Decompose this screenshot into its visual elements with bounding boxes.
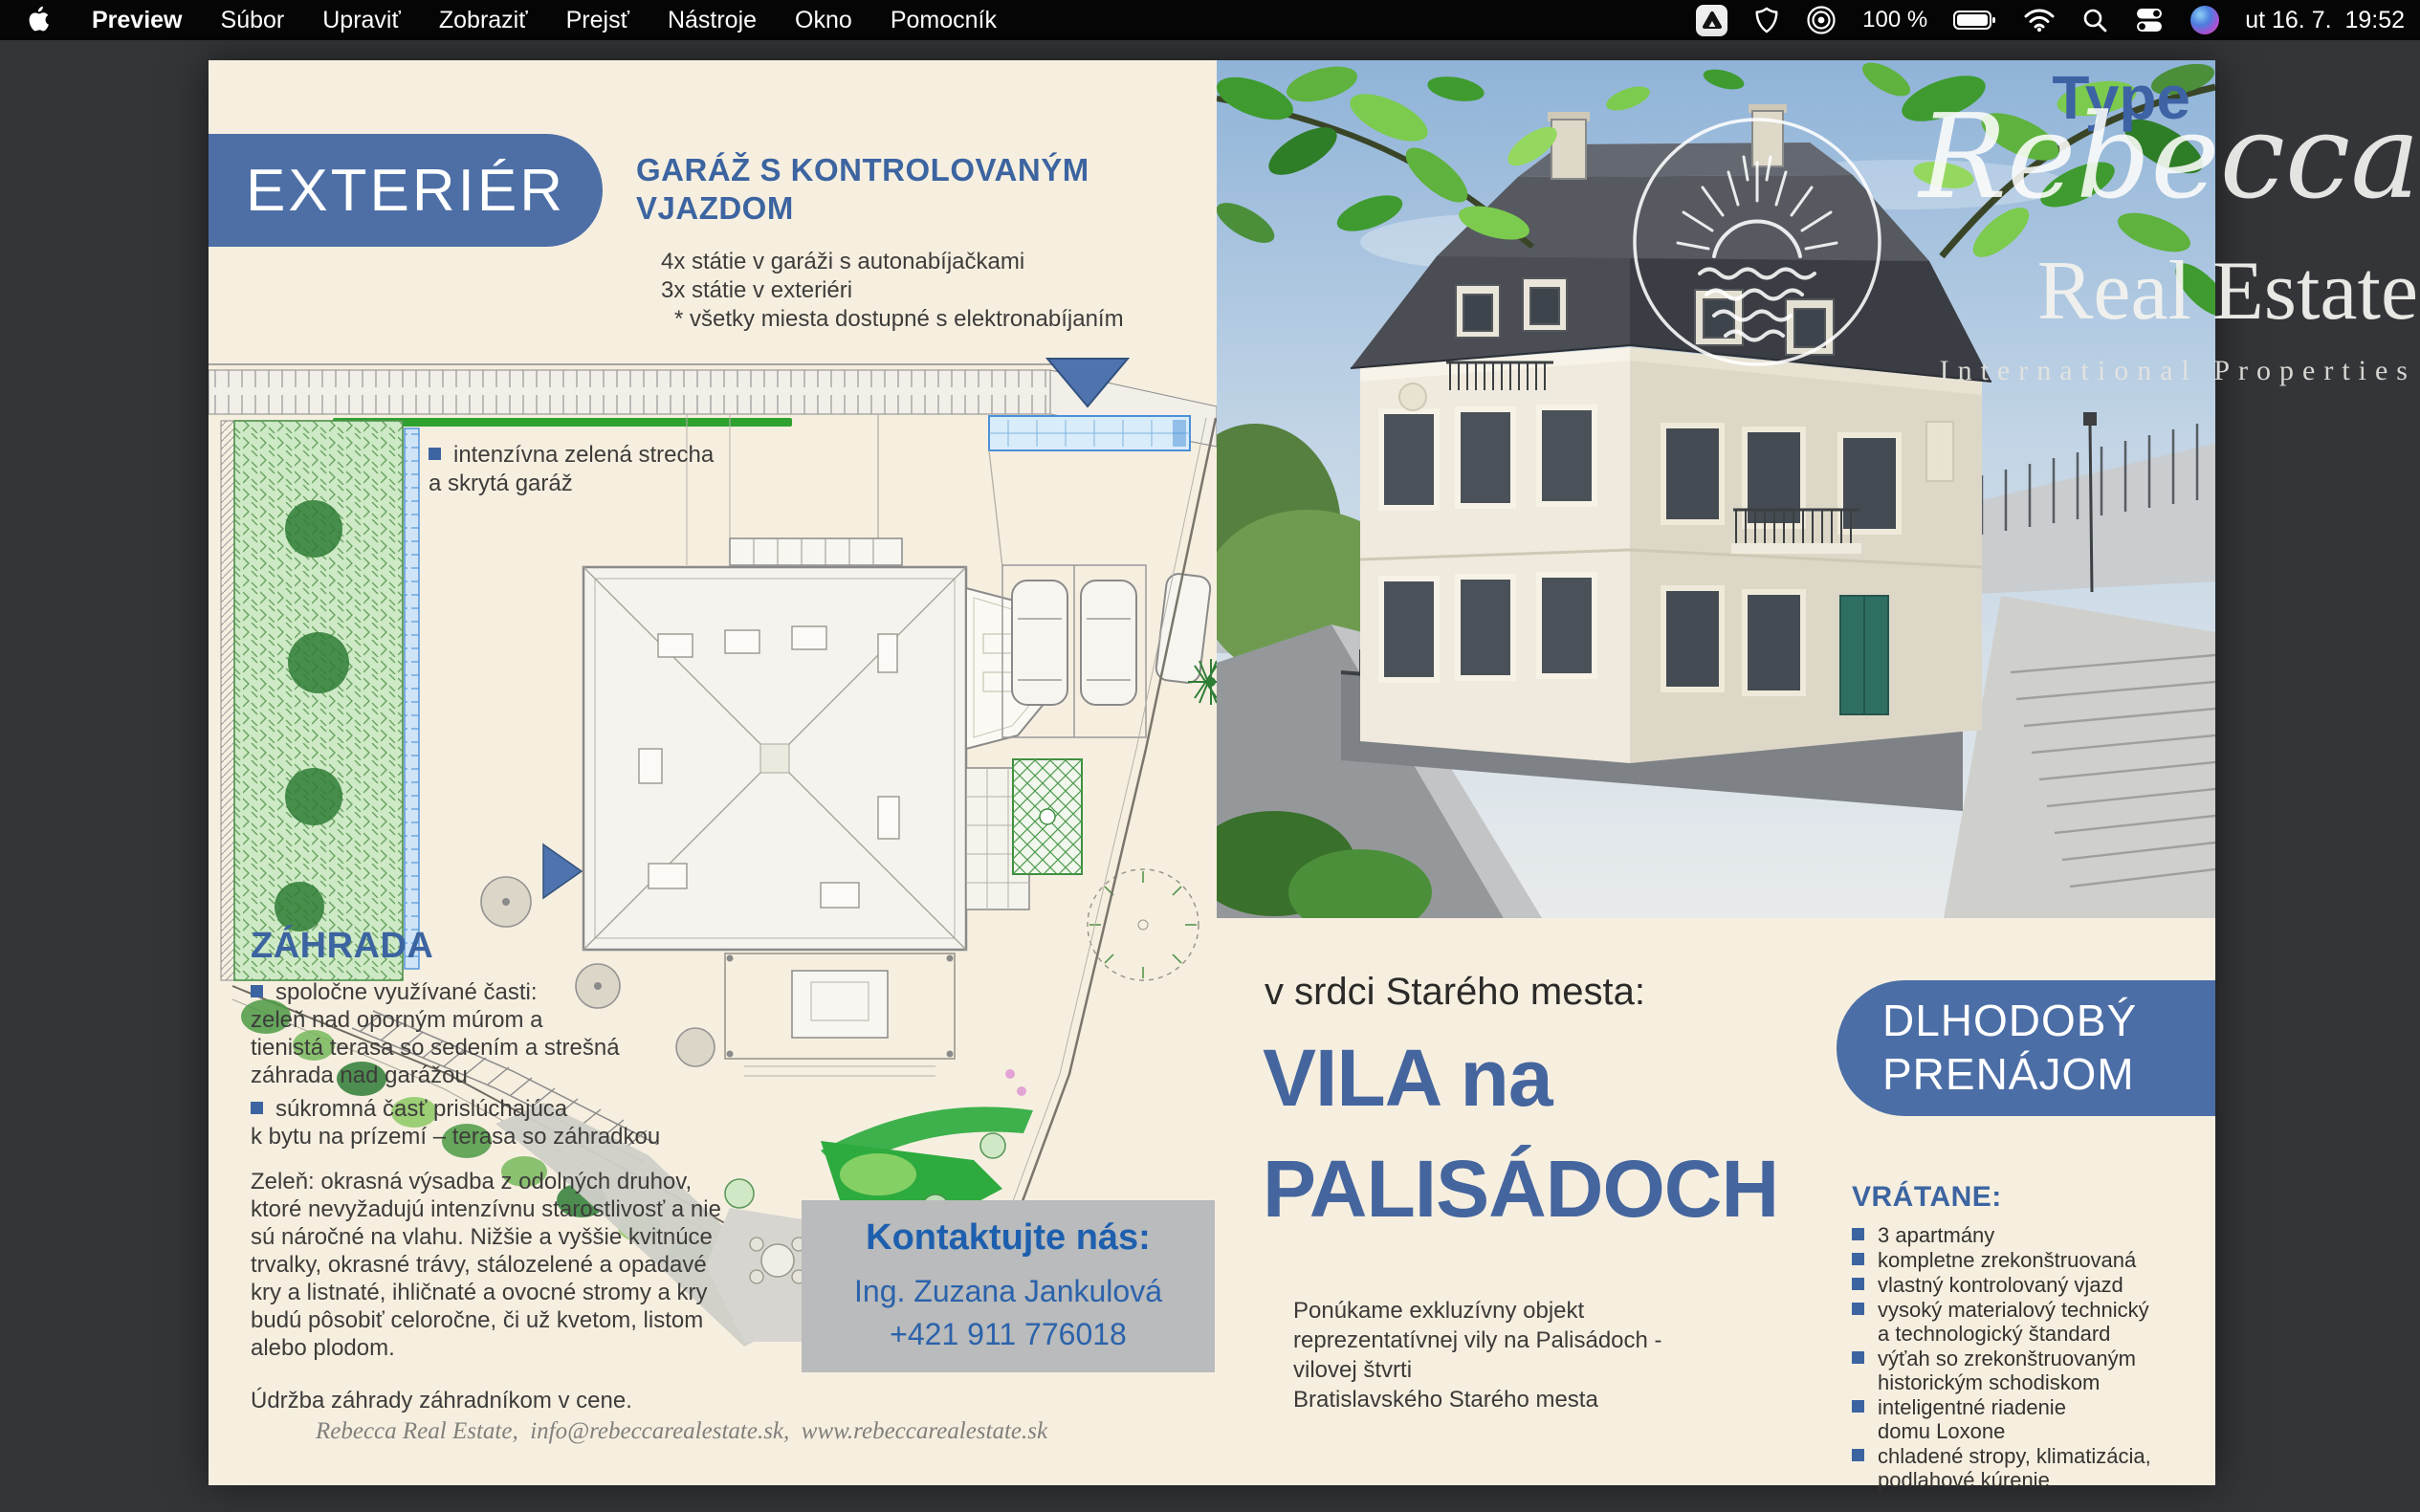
screen-mirroring-icon[interactable] — [1806, 5, 1837, 35]
garden-note: Údržba záhrady záhradníkom v cene. — [251, 1387, 758, 1414]
section-title: EXTERIÉR — [246, 157, 565, 225]
included-item: inteligentné riadenie domu Loxone — [1852, 1395, 2219, 1443]
wifi-icon[interactable] — [2023, 8, 2056, 33]
included-section: VRÁTANE: 3 apartmány kompletne zrekonštr… — [1852, 1181, 2219, 1493]
menu-item-zobrazit[interactable]: Zobraziť — [439, 7, 528, 34]
property-title-line2: PALISÁDOCH — [1263, 1133, 1778, 1244]
included-item: vysoký materialový technický a technolog… — [1852, 1298, 2219, 1346]
square-bullet-icon — [251, 1102, 263, 1114]
contact-box: Kontaktujte nás: Ing. Zuzana Jankulová +… — [802, 1200, 1215, 1372]
menubar-app-icon[interactable] — [1696, 5, 1727, 36]
included-item: výťah so zrekonštruovaným historickým sc… — [1852, 1347, 2219, 1394]
menu-item-prejst[interactable]: Prejsť — [566, 7, 629, 34]
included-item: kompletne zrekonštruovaná — [1852, 1248, 2219, 1272]
included-item: chladené stropy, klimatizácia, podlahové… — [1852, 1444, 2219, 1492]
included-item: vlastný kontrolovaný vjazd — [1852, 1273, 2219, 1297]
battery-icon[interactable] — [1953, 10, 1997, 31]
brochure-document: EXTERIÉR GARÁŽ S KONTROLOVANÝM VJAZDOM 4… — [209, 60, 2215, 1485]
parking-line: 3x státie v exteriéri — [661, 276, 1124, 305]
menu-item-okno[interactable]: Okno — [795, 7, 852, 34]
siri-icon[interactable] — [2190, 6, 2219, 34]
included-heading: VRÁTANE: — [1852, 1181, 2219, 1214]
property-title: VILA na PALISÁDOCH — [1263, 1022, 1778, 1244]
spotlight-search-icon[interactable] — [2081, 7, 2108, 33]
garden-section: ZÁHRADA spoločne využívané časti: zeleň … — [251, 926, 758, 1414]
menu-app-name[interactable]: Preview — [92, 7, 183, 34]
parking-line: * všetky miesta dostupné s elektronabíja… — [661, 305, 1124, 334]
villa-photo-drawing — [1217, 60, 2215, 918]
contact-title: Kontaktujte nás: — [802, 1217, 1215, 1259]
screen: Preview Súbor Upraviť Zobraziť Prejsť Ná… — [0, 0, 2420, 1512]
property-description: Ponúkame exkluzívny objekt reprezentatív… — [1293, 1296, 1662, 1414]
menu-item-nastroje[interactable]: Nástroje — [668, 7, 757, 34]
menu-item-upravit[interactable]: Upraviť — [322, 7, 401, 34]
garden-heading: ZÁHRADA — [251, 926, 758, 967]
privacy-shield-icon[interactable] — [1753, 5, 1780, 35]
garden-paragraph: Zeleň: okrasná výsadba z odolných druhov… — [251, 1168, 758, 1362]
parking-line: 4x státie v garáži s autonabíjačkami — [661, 248, 1124, 276]
parking-info: 4x státie v garáži s autonabíjačkami 3x … — [661, 248, 1124, 334]
brochure-left-page: EXTERIÉR GARÁŽ S KONTROLOVANÝM VJAZDOM 4… — [209, 60, 1217, 1485]
section-title-pill: EXTERIÉR — [209, 134, 603, 247]
rental-banner: DLHODOBÝ PRENÁJOM — [1837, 980, 2215, 1116]
green-roof-note-text: intenzívna zelená strecha a skrytá garáž — [429, 442, 714, 496]
villa-photo — [1217, 60, 2215, 918]
property-title-line1: VILA na — [1263, 1022, 1778, 1133]
control-center-icon[interactable] — [2134, 6, 2165, 34]
menu-item-pomocnik[interactable]: Pomocník — [891, 7, 997, 34]
menu-bar: Preview Súbor Upraviť Zobraziť Prejsť Ná… — [0, 0, 2420, 40]
contact-name: Ing. Zuzana Jankulová — [802, 1274, 1215, 1309]
garden-bullet: spoločne využívané časti: zeleň nad opor… — [251, 978, 758, 1089]
contact-phone: +421 911 776018 — [802, 1317, 1215, 1352]
green-roof-note: intenzívna zelená strecha a skrytá garáž — [429, 441, 714, 498]
garden-bullet-text: spoločne využívané časti: zeleň nad opor… — [251, 979, 620, 1088]
garden-bullet-text: súkromná časť prislúchajúca k bytu na pr… — [251, 1096, 660, 1150]
garden-bullet: súkromná časť prislúchajúca k bytu na pr… — [251, 1095, 758, 1150]
square-bullet-icon — [429, 448, 441, 460]
apple-menu-icon[interactable] — [29, 3, 54, 38]
square-bullet-icon — [251, 985, 263, 997]
menu-clock[interactable]: ut 16. 7. 19:52 — [2245, 7, 2405, 34]
brochure-right-page: Type Rebecca Real Estate International P… — [1217, 60, 2215, 1485]
menu-item-subor[interactable]: Súbor — [221, 7, 285, 34]
battery-percent: 100 % — [1862, 7, 1927, 33]
included-item: 3 apartmány — [1852, 1223, 2219, 1247]
page-footer: Rebecca Real Estate, info@rebeccarealest… — [316, 1418, 1047, 1445]
garage-heading: GARÁŽ S KONTROLOVANÝM VJAZDOM — [636, 151, 1089, 228]
location-intro: v srdci Starého mesta: — [1265, 971, 1645, 1014]
